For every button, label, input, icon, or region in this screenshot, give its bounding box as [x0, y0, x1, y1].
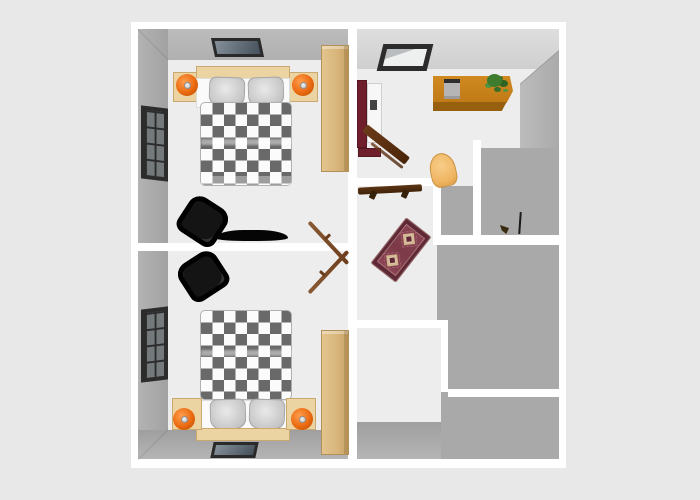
duvet-fold [201, 350, 291, 356]
potted-plant [487, 74, 502, 87]
wall-picture [210, 442, 258, 458]
bed-duvet-checkered [200, 310, 292, 400]
wardrobe [321, 330, 349, 455]
stair-nosing-dots [440, 304, 487, 307]
desk-front [433, 102, 513, 111]
duvet-ruffle [201, 176, 291, 185]
duvet-fold [201, 139, 291, 145]
lamp-cap [181, 416, 188, 423]
piano-music-stand [370, 100, 377, 110]
pillow [248, 398, 285, 429]
lamp-cap [184, 82, 191, 89]
tv-bench-black [215, 230, 288, 241]
floorplan-screenshot: { "meta": { "description": "3D overhead … [0, 0, 700, 500]
wall-bedroom-divider [138, 243, 348, 251]
bag-handle [388, 365, 397, 374]
wardrobe [321, 45, 349, 172]
laptop [444, 79, 460, 99]
lamp-cap [300, 82, 307, 89]
shower-head [512, 196, 530, 214]
door-mat [362, 302, 422, 318]
wall-picture [211, 38, 264, 57]
pillow [209, 398, 246, 429]
skylight-window [377, 44, 434, 71]
rug-medallion [384, 252, 401, 269]
bed-headboard [196, 428, 290, 441]
rug-medallion [401, 231, 418, 248]
ski-bag-vertical [388, 365, 410, 428]
ski-bag-horizontal [428, 395, 490, 417]
wall-basin-red [538, 305, 559, 335]
window [141, 306, 168, 382]
wall-storage-landing [441, 320, 448, 392]
corner-shadow-bottom-right [509, 425, 559, 459]
stair-railing [529, 243, 532, 368]
wall-office-shower [473, 140, 481, 245]
floor-plan [131, 22, 566, 468]
piano-body [357, 80, 367, 148]
bed-duvet-checkered [200, 102, 292, 186]
lamp-cap [299, 416, 306, 423]
window [141, 105, 168, 181]
bag-handle [428, 395, 438, 403]
wall-center-vertical [348, 29, 357, 459]
shower-tray [482, 180, 508, 234]
